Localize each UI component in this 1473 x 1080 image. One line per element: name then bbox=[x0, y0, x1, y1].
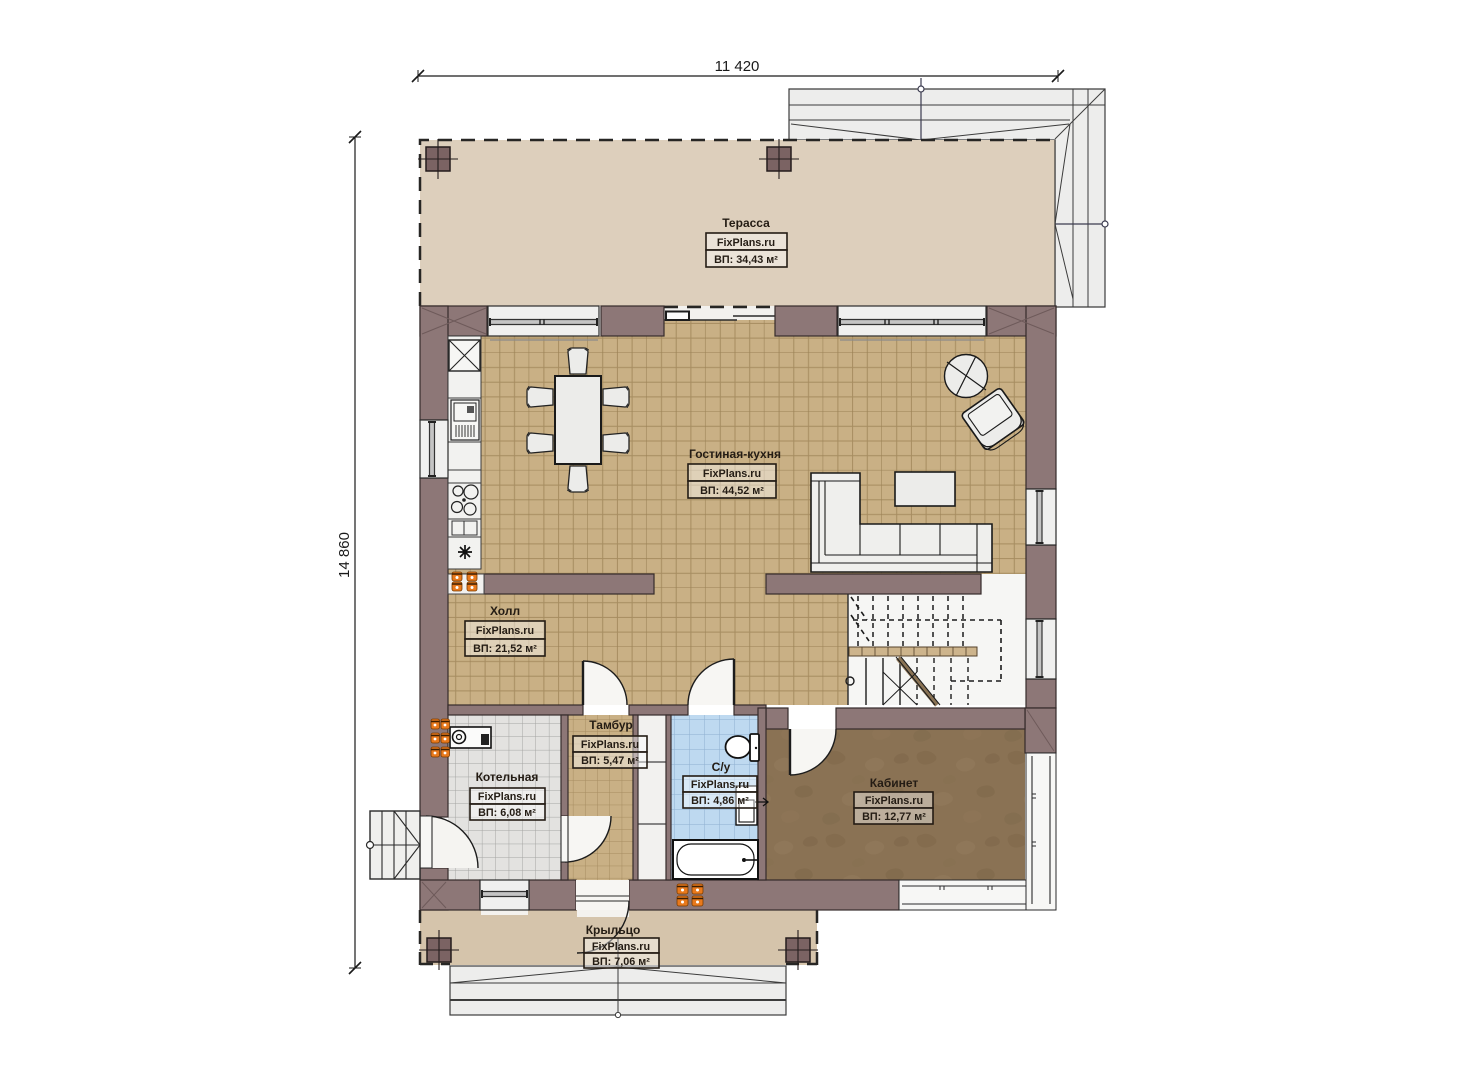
svg-text:14 860: 14 860 bbox=[336, 532, 353, 578]
svg-text:С/у: С/у bbox=[712, 760, 731, 774]
svg-text:FixPlans.ru: FixPlans.ru bbox=[703, 468, 761, 480]
svg-text:ВП: 6,08 м²: ВП: 6,08 м² bbox=[478, 807, 536, 819]
svg-text:ВП: 12,77 м²: ВП: 12,77 м² bbox=[862, 811, 926, 823]
svg-text:FixPlans.ru: FixPlans.ru bbox=[581, 739, 639, 751]
svg-text:ВП: 44,52 м²: ВП: 44,52 м² bbox=[700, 485, 764, 497]
svg-text:ВП: 5,47 м²: ВП: 5,47 м² bbox=[581, 755, 639, 767]
svg-text:Холл: Холл bbox=[490, 604, 520, 618]
svg-text:FixPlans.ru: FixPlans.ru bbox=[476, 625, 534, 637]
svg-text:Котельная: Котельная bbox=[476, 770, 539, 784]
svg-text:Крыльцо: Крыльцо bbox=[586, 923, 641, 937]
svg-text:FixPlans.ru: FixPlans.ru bbox=[592, 941, 650, 953]
svg-text:Терасса: Терасса bbox=[722, 216, 770, 230]
svg-text:Гостиная-кухня: Гостиная-кухня bbox=[689, 447, 781, 461]
svg-text:ВП: 21,52 м²: ВП: 21,52 м² bbox=[473, 643, 537, 655]
svg-text:ВП: 7,06 м²: ВП: 7,06 м² bbox=[592, 956, 650, 968]
svg-text:ВП: 4,86 м²: ВП: 4,86 м² bbox=[691, 795, 749, 807]
svg-text:FixPlans.ru: FixPlans.ru bbox=[691, 779, 749, 791]
svg-text:FixPlans.ru: FixPlans.ru bbox=[865, 795, 923, 807]
svg-text:Кабинет: Кабинет bbox=[870, 776, 919, 790]
svg-text:FixPlans.ru: FixPlans.ru bbox=[478, 791, 536, 803]
svg-text:FixPlans.ru: FixPlans.ru bbox=[717, 237, 775, 249]
svg-text:11 420: 11 420 bbox=[715, 58, 760, 75]
svg-text:Тамбур: Тамбур bbox=[589, 718, 633, 732]
svg-text:ВП: 34,43 м²: ВП: 34,43 м² bbox=[714, 254, 778, 266]
